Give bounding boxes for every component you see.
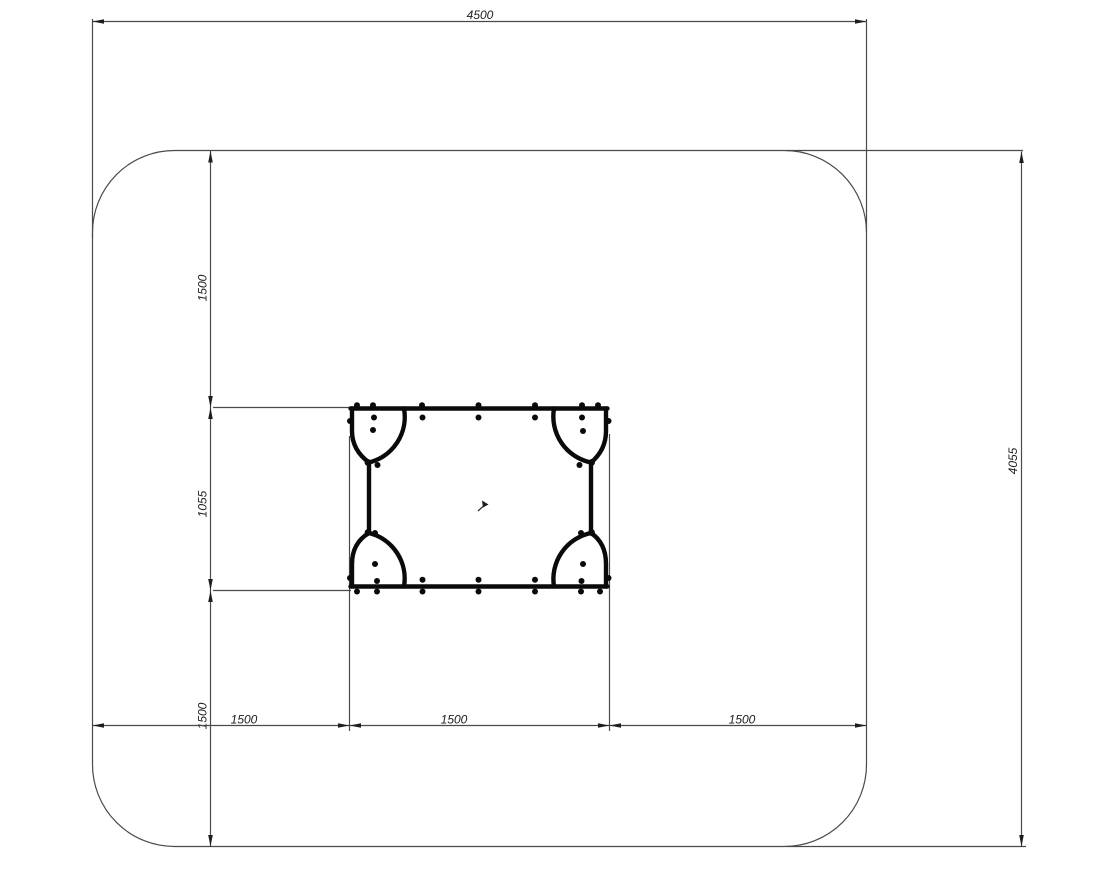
svg-text:1500: 1500 bbox=[196, 274, 210, 301]
svg-text:1500: 1500 bbox=[231, 713, 258, 727]
svg-text:4500: 4500 bbox=[467, 8, 494, 22]
svg-text:4055: 4055 bbox=[1006, 447, 1020, 474]
svg-text:1055: 1055 bbox=[196, 490, 210, 517]
svg-text:1500: 1500 bbox=[729, 713, 756, 727]
svg-text:1500: 1500 bbox=[441, 713, 468, 727]
